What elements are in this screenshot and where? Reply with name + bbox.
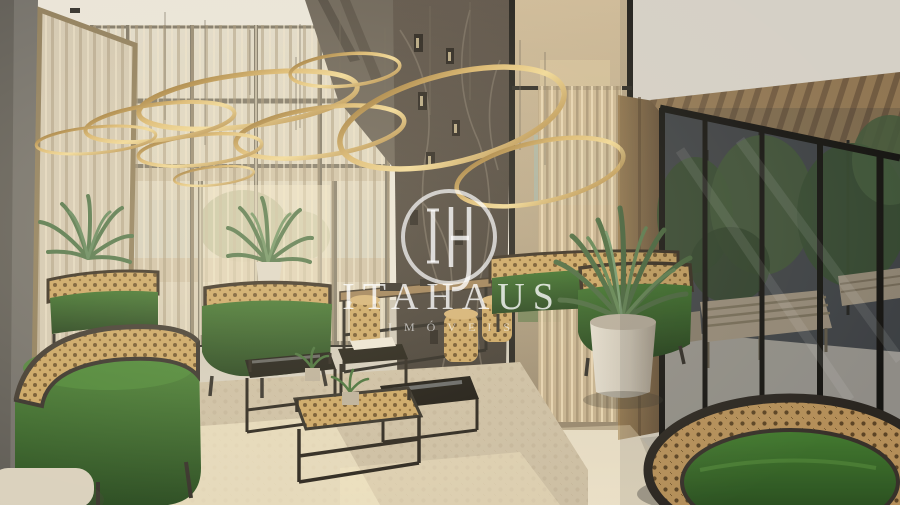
watermark-subtitle: IMÓVEIS — [388, 320, 522, 334]
watermark-brand: ITAHAUS — [342, 276, 562, 318]
right-shade — [620, 0, 900, 505]
render-canvas: ITAHAUS IMÓVEIS — [0, 0, 900, 505]
interior-render-photo: ITAHAUS IMÓVEIS — [0, 0, 900, 505]
